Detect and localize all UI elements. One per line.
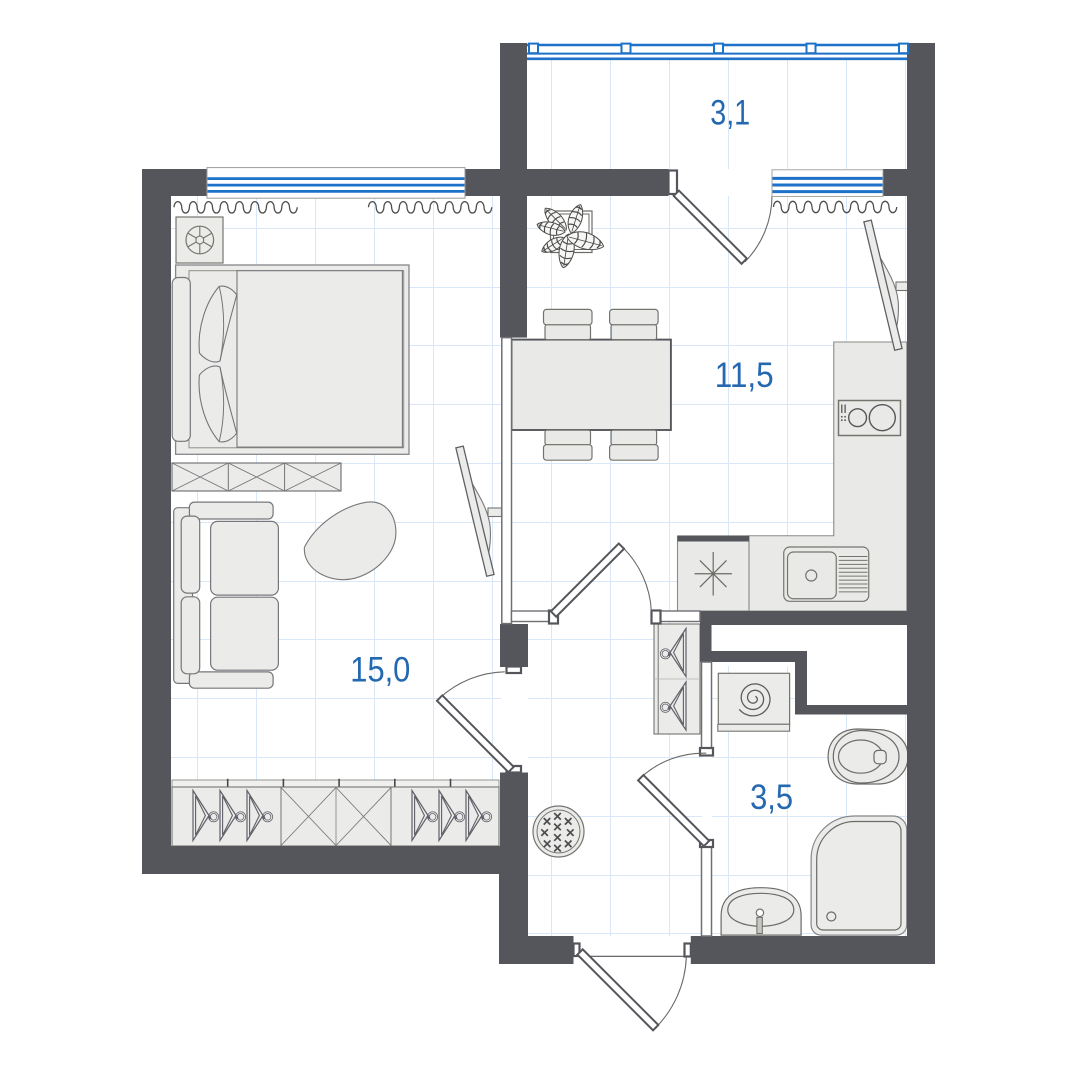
svg-text:3,1: 3,1 — [710, 94, 750, 133]
svg-text:15,0: 15,0 — [350, 650, 410, 689]
svg-text:11,5: 11,5 — [715, 356, 774, 395]
svg-text:3,5: 3,5 — [750, 778, 793, 817]
